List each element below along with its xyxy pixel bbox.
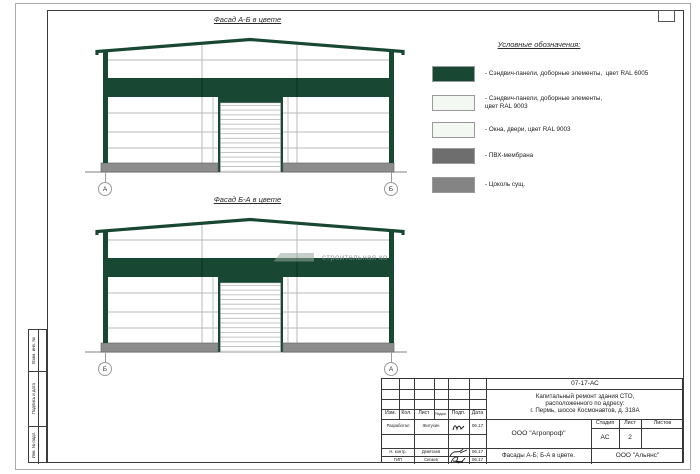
- project-line: г. Пермь, шоссе Космонавтов, д. 318А: [530, 408, 639, 415]
- sheet-title: Фасады А-Б; Б-А в цвете.: [486, 448, 591, 464]
- column-right: [389, 231, 394, 343]
- role-ncontrol: Н. контр.: [382, 448, 414, 456]
- legend-swatch-plinth: [432, 177, 475, 193]
- facade-a-b-drawing: [85, 26, 410, 196]
- date-gip: 06.17: [469, 456, 486, 464]
- roof: [97, 220, 403, 236]
- axis-marker-b: Б: [98, 362, 112, 376]
- col-ndok: №док.: [434, 409, 448, 419]
- name-gip: Сигаев: [414, 456, 448, 464]
- side-label-inv: Инв. № подл.: [29, 426, 38, 464]
- stage-value: АС: [591, 428, 619, 448]
- legend-item-windows: - Окна, двери, цвет RAL 9003: [432, 122, 685, 138]
- col-list: Лист: [414, 409, 434, 419]
- green-band: [106, 78, 392, 97]
- side-attribute-cells: Взам. инв. № Подпись и дата Инв. № подл.: [28, 329, 47, 463]
- corner-box: [658, 10, 675, 22]
- sheet-label: Лист: [619, 419, 641, 428]
- sectional-door: [221, 283, 281, 352]
- legend-label: - Окна, двери, цвет RAL 9003: [485, 126, 685, 134]
- side-label-podpis: Подпись и дата: [29, 371, 38, 426]
- legend-label: - ПВХ-мембрана: [485, 152, 685, 160]
- plinth-right: [283, 163, 394, 172]
- title-block: Изм. Кол. Лист №док. Подп. Дата Разработ…: [381, 378, 683, 463]
- role-developer: Разработал: [382, 419, 414, 434]
- axis-marker-a: А: [384, 362, 398, 376]
- date-ncontrol: 06.17: [469, 448, 486, 456]
- stage-label: Стадия: [591, 419, 619, 428]
- sheet-number: 2: [619, 428, 641, 448]
- legend-swatch-ral6005: [432, 66, 475, 82]
- plinth-right: [283, 343, 394, 352]
- legend: Условные обозначения: - Сэндвич-панели, …: [430, 40, 686, 200]
- legend-title: Условные обозначения:: [430, 40, 648, 49]
- legend-item-pvc: - ПВХ-мембрана: [432, 148, 685, 164]
- facade-a-b-title: Фасад А-Б в цвете: [85, 14, 410, 26]
- legend-swatch-ral9003: [432, 95, 475, 111]
- col-data: Дата: [469, 409, 486, 419]
- name-ncontrol: Девятаев: [414, 448, 448, 456]
- column-left: [103, 51, 108, 163]
- legend-label: - Сэндвич-панели, доборные элементы, цве…: [485, 95, 685, 111]
- legend-swatch-windows: [432, 122, 475, 138]
- green-band: [106, 258, 392, 277]
- legend-label: - Цоколь сущ.: [485, 181, 685, 189]
- side-label-vzam: Взам. инв. №: [29, 330, 38, 371]
- facade-b-a-drawing: [85, 206, 410, 376]
- legend-item-ral6005: - Сэндвич-панели, доборные элементы, цве…: [432, 66, 685, 82]
- legend-swatch-pvc: [432, 148, 475, 164]
- roof: [97, 40, 403, 56]
- legend-item-plinth: - Цоколь сущ.: [432, 177, 685, 193]
- name-developer: Житухин: [414, 419, 448, 434]
- sheets-label: Листов: [641, 419, 684, 428]
- plinth-left: [101, 163, 218, 172]
- facade-a-b: Фасад А-Б в цвете: [85, 14, 410, 196]
- divider: [38, 330, 39, 464]
- project-description: Капитальный ремонт здания СТО, расположе…: [486, 390, 684, 419]
- column-left: [103, 231, 108, 343]
- doc-number: 07-17-АС: [486, 379, 684, 389]
- drawing-sheet: Взам. инв. № Подпись и дата Инв. № подл.…: [0, 0, 700, 474]
- plinth-left: [101, 343, 218, 352]
- org-name: ООО "Агропроф": [486, 419, 591, 448]
- col-podp: Подп.: [448, 409, 469, 419]
- signature-gip-icon: [448, 455, 469, 465]
- sectional-door: [221, 103, 281, 172]
- role-gip: ГИП: [382, 456, 414, 464]
- legend-item-ral9003: - Сэндвич-панели, доборные элементы, цве…: [432, 95, 685, 111]
- contractor-name: ООО "Альянс": [591, 448, 684, 464]
- facade-b-a: Фасад Б-А в цвете: [85, 194, 410, 376]
- col-izm: Изм.: [382, 409, 399, 419]
- col-kol: Кол.: [399, 409, 414, 419]
- facade-b-a-title: Фасад Б-А в цвете: [85, 194, 410, 206]
- column-right: [389, 51, 394, 163]
- signature-developer-icon: [448, 420, 469, 433]
- date-developer: 06.17: [469, 419, 486, 434]
- legend-label: - Сэндвич-панели, доборные элементы, цве…: [485, 70, 685, 78]
